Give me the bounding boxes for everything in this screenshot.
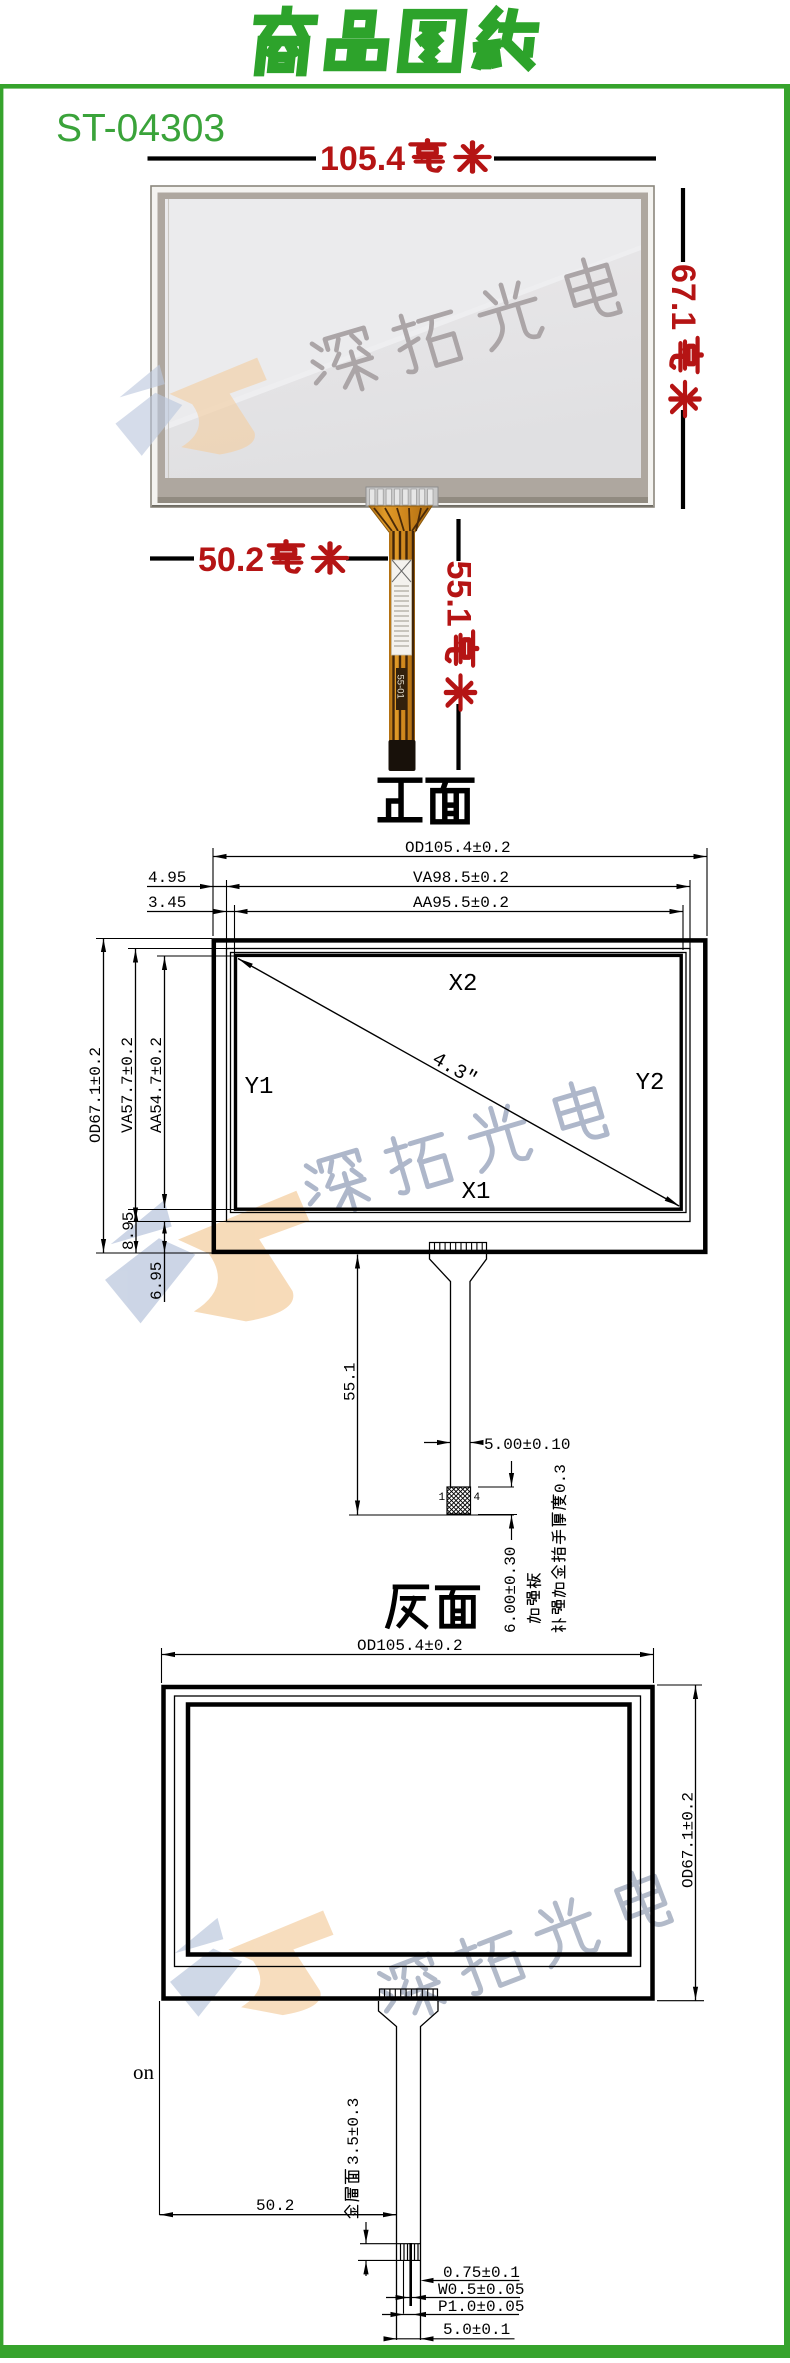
svg-text:3.5±0.3: 3.5±0.3 [345,2098,363,2165]
svg-text:55.1: 55.1 [342,1363,360,1401]
svg-text:on: on [133,2060,155,2084]
svg-text:OD105.4±0.2: OD105.4±0.2 [357,1637,463,1655]
svg-text:67.1: 67.1 [664,264,702,330]
svg-text:OD67.1±0.2: OD67.1±0.2 [87,1047,105,1143]
svg-text:ST-04303: ST-04303 [56,107,225,150]
svg-text:50.2: 50.2 [198,541,264,579]
svg-text:P1.0±0.05: P1.0±0.05 [438,2298,524,2316]
svg-text:VA57.7±0.2: VA57.7±0.2 [119,1037,137,1133]
svg-text:4.95: 4.95 [148,869,186,887]
svg-text:5.0±0.1: 5.0±0.1 [443,2321,510,2339]
svg-text:AA95.5±0.2: AA95.5±0.2 [413,894,509,912]
svg-text:Y2: Y2 [636,1070,665,1097]
svg-text:X1: X1 [462,1179,491,1206]
svg-text:1: 1 [439,1492,446,1504]
svg-text:W0.5±0.05: W0.5±0.05 [438,2281,524,2299]
svg-text:Y1: Y1 [245,1074,274,1101]
svg-text:6.00±0.30: 6.00±0.30 [502,1547,520,1633]
svg-text:OD67.1±0.2: OD67.1±0.2 [680,1792,698,1888]
svg-text:VA98.5±0.2: VA98.5±0.2 [413,869,509,887]
svg-text:0.3: 0.3 [552,1464,570,1493]
svg-text:50.2: 50.2 [256,2197,294,2215]
svg-text:8.95: 8.95 [120,1212,138,1250]
svg-text:5.00±0.10: 5.00±0.10 [484,1436,570,1454]
svg-text:AA54.7±0.2: AA54.7±0.2 [148,1037,166,1133]
svg-text:4: 4 [474,1492,481,1504]
svg-text:3.45: 3.45 [148,894,186,912]
svg-text:OD105.4±0.2: OD105.4±0.2 [405,839,511,857]
svg-text:4.3": 4.3" [428,1048,481,1092]
svg-text:0.75±0.1: 0.75±0.1 [443,2264,520,2282]
svg-text:55-01: 55-01 [395,675,406,699]
svg-text:6.95: 6.95 [148,1262,166,1300]
svg-text:X2: X2 [449,971,478,998]
svg-text:55.1: 55.1 [440,561,478,627]
svg-text:105.4: 105.4 [320,140,405,178]
